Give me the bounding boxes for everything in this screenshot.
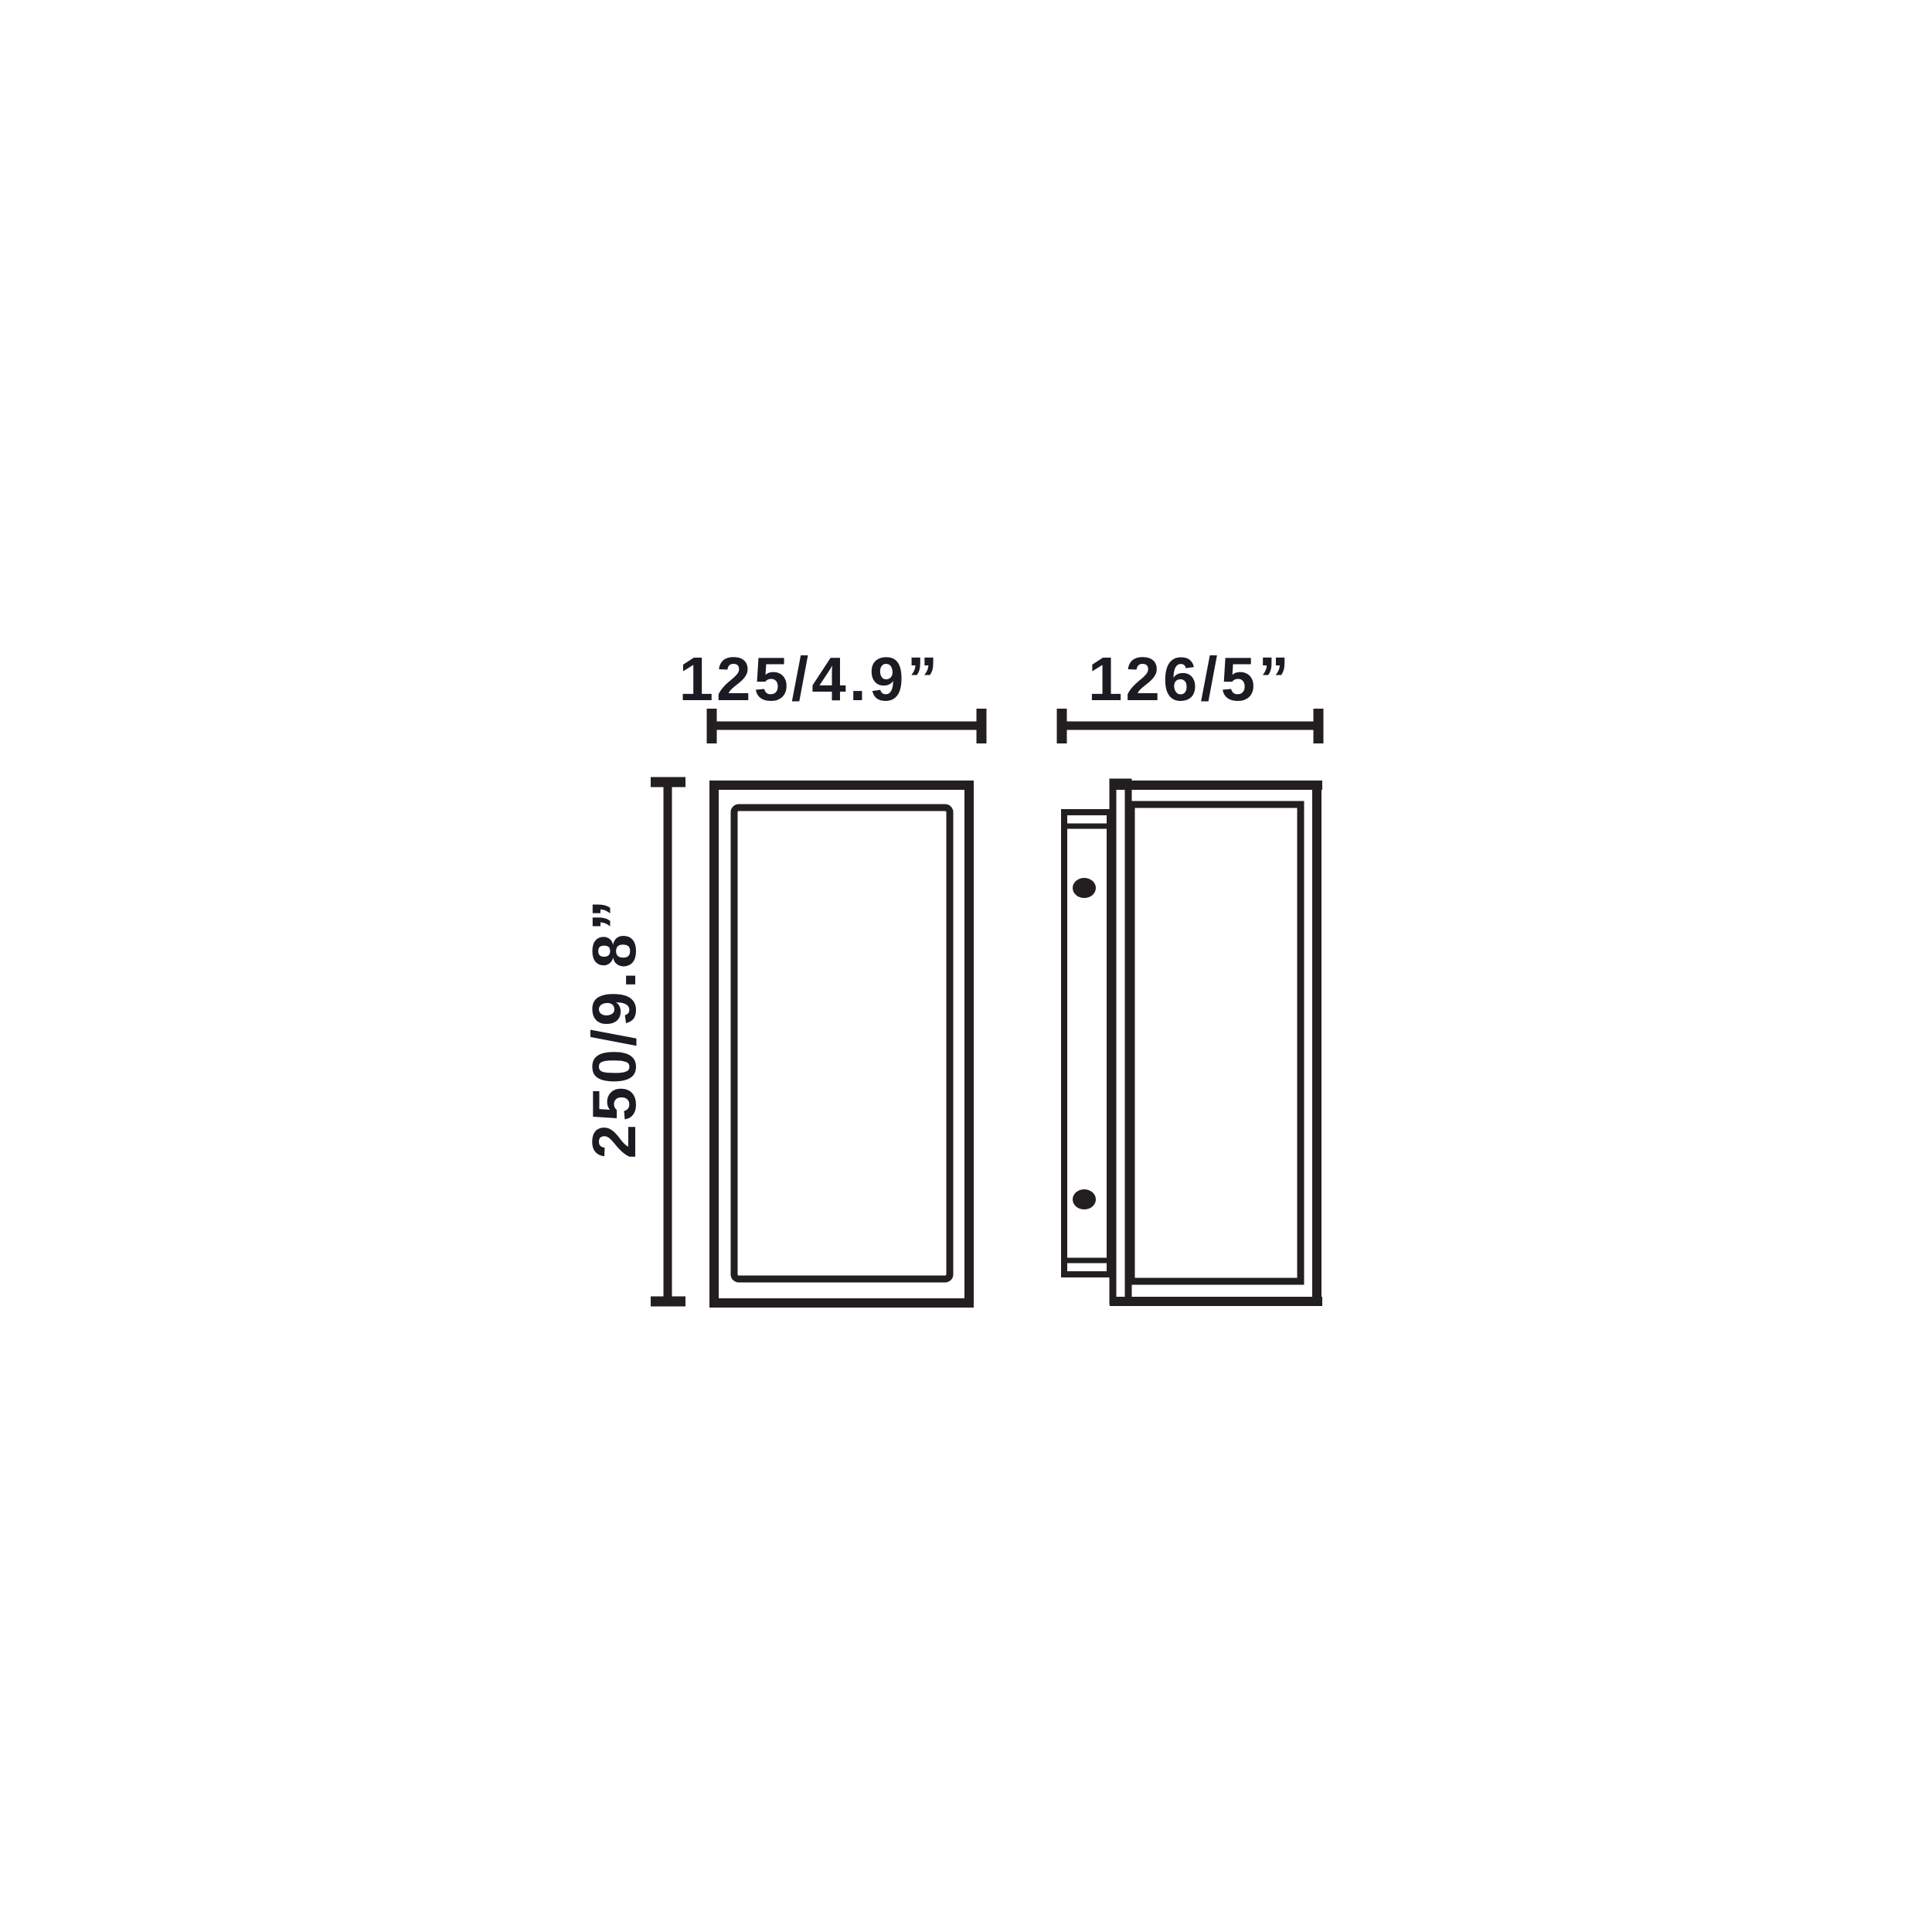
front-outer-frame — [714, 785, 969, 1303]
front-inner-frame — [734, 808, 950, 1279]
side-back-upright — [1113, 782, 1128, 1301]
side-depth-dimension: 126/5” — [1062, 645, 1318, 743]
screw-hole-bottom — [1073, 1189, 1096, 1209]
side-depth-label: 126/5” — [1088, 645, 1292, 713]
screw-hole-top — [1073, 878, 1096, 898]
front-view — [714, 785, 969, 1303]
side-view — [1061, 781, 1322, 1306]
side-box-inner-frame — [1131, 804, 1301, 1281]
front-width-label: 125/4.9” — [679, 645, 941, 713]
front-width-dimension: 125/4.9” — [679, 645, 981, 743]
wall-lamp-dimension-diagram: 125/4.9” 126/5” 250/9.8” — [0, 0, 1932, 1932]
technical-drawing-canvas: 125/4.9” 126/5” 250/9.8” — [0, 0, 1932, 1932]
height-label: 250/9.8” — [580, 897, 648, 1159]
height-dimension: 250/9.8” — [580, 782, 685, 1301]
